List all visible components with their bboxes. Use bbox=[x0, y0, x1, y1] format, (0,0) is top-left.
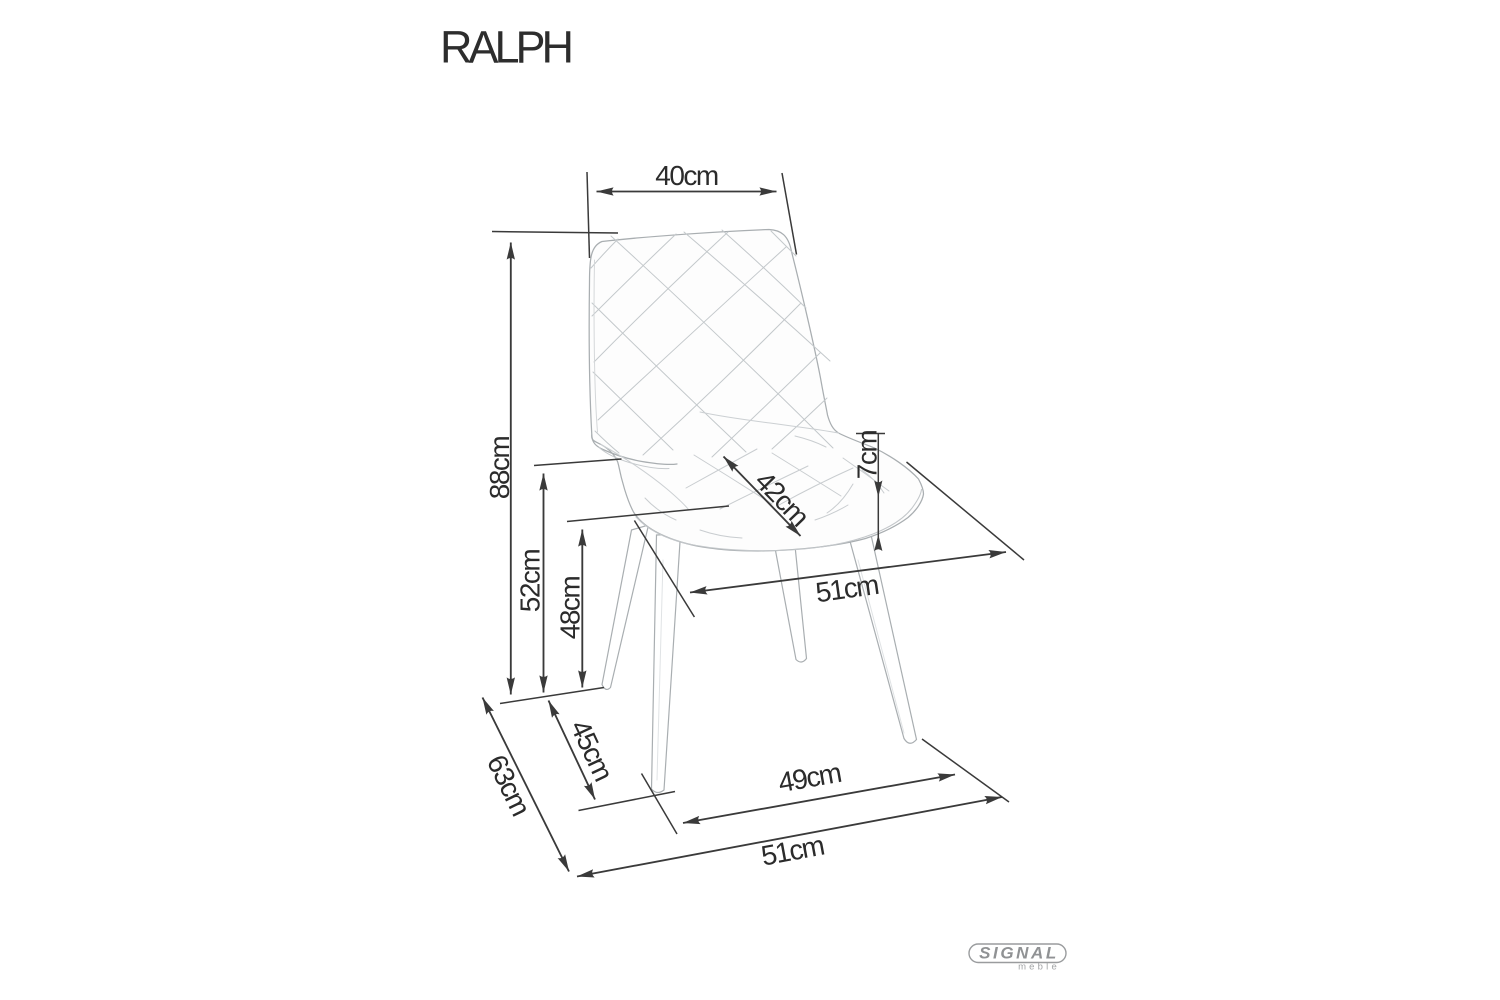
svg-text:7cm: 7cm bbox=[852, 431, 883, 480]
svg-text:51cm: 51cm bbox=[759, 830, 826, 872]
svg-text:52cm: 52cm bbox=[515, 550, 546, 613]
svg-text:meble: meble bbox=[1018, 962, 1060, 973]
svg-text:88cm: 88cm bbox=[484, 437, 515, 500]
svg-text:40cm: 40cm bbox=[655, 160, 718, 191]
svg-text:SIGNAL: SIGNAL bbox=[979, 944, 1059, 963]
svg-text:49cm: 49cm bbox=[776, 757, 843, 798]
svg-text:63cm: 63cm bbox=[481, 750, 536, 820]
svg-text:48cm: 48cm bbox=[555, 577, 586, 640]
svg-text:RALPH: RALPH bbox=[440, 22, 571, 73]
